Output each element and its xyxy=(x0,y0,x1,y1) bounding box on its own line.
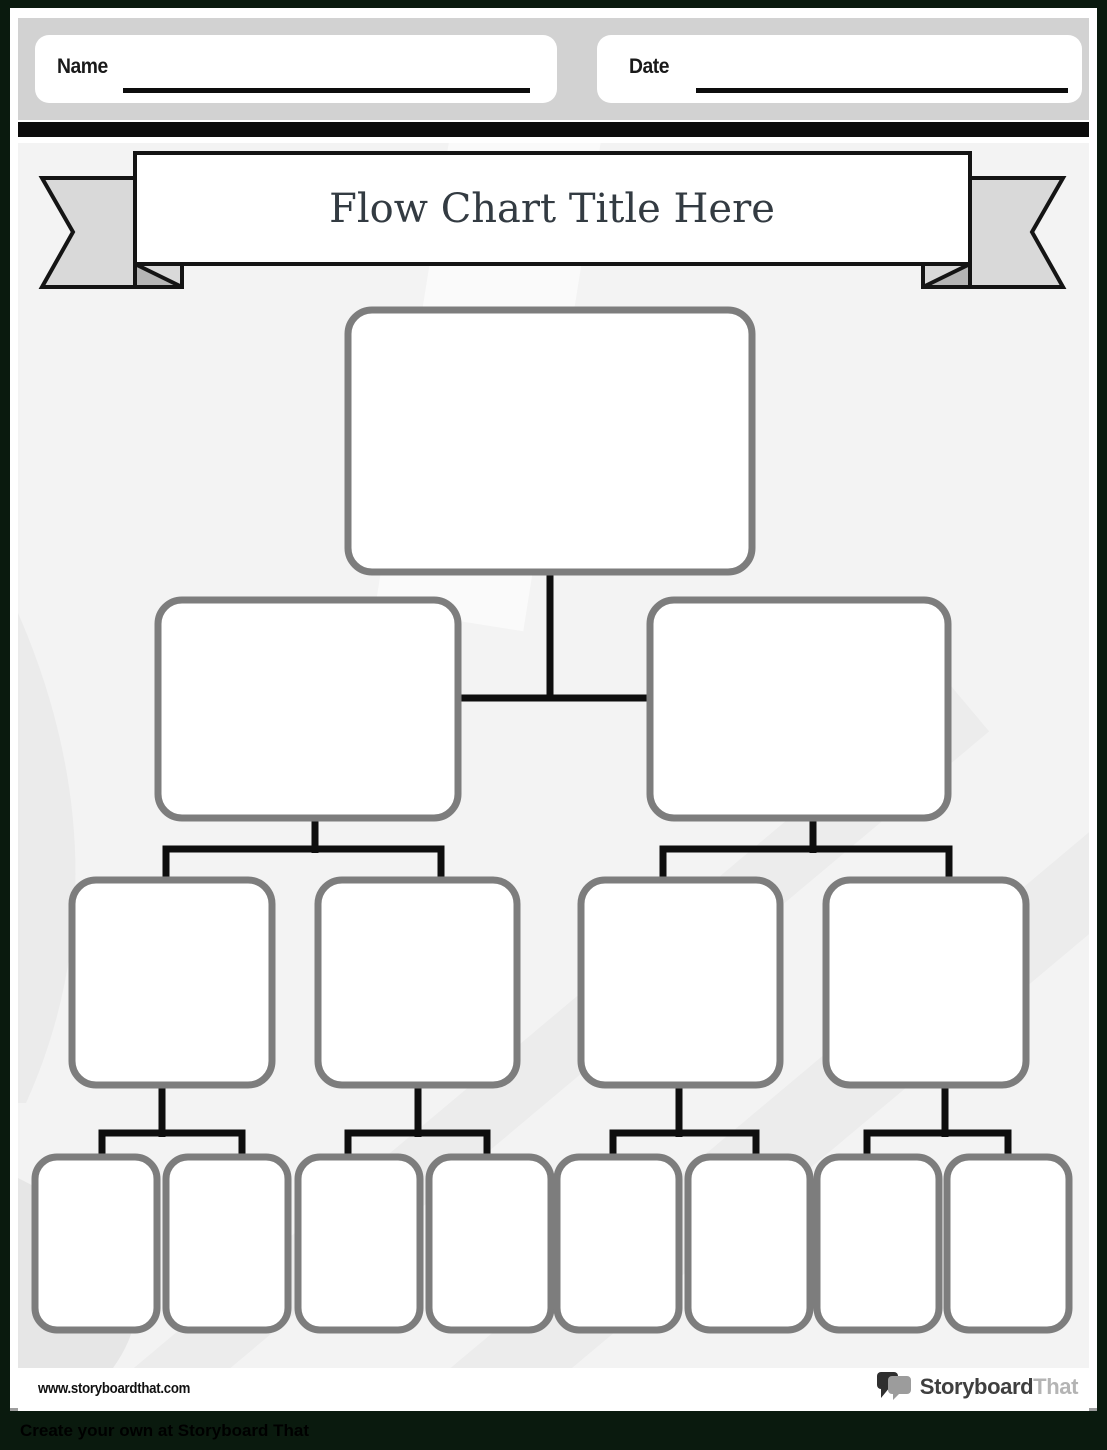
flow-box-root[interactable] xyxy=(348,310,752,572)
worksheet-page: Name Date xyxy=(0,0,1107,1450)
bottom-bar-text: Create your own at Storyboard That xyxy=(20,1411,309,1450)
bottom-bar: Create your own at Storyboard That xyxy=(0,1411,1107,1450)
header-band: Name Date xyxy=(18,18,1089,120)
flow-box-level4-4[interactable] xyxy=(429,1157,551,1330)
footer-bar: www.storyboardthat.com StoryboardThat xyxy=(18,1368,1089,1411)
flow-box-level4-8[interactable] xyxy=(947,1157,1069,1330)
flow-box-level4-3[interactable] xyxy=(298,1157,420,1330)
date-line xyxy=(696,88,1068,93)
flow-box-level4-2[interactable] xyxy=(166,1157,288,1330)
content-area: Flow Chart Title Here xyxy=(18,143,1089,1368)
date-label: Date xyxy=(629,55,669,79)
flow-box-level3-3[interactable] xyxy=(581,880,780,1085)
website-url: www.storyboardthat.com xyxy=(38,1380,190,1397)
flow-box-level3-1[interactable] xyxy=(72,880,272,1085)
flowchart-title[interactable]: Flow Chart Title Here xyxy=(329,186,775,232)
logo-speech-bubbles-icon xyxy=(876,1371,914,1403)
flow-box-level4-5[interactable] xyxy=(557,1157,679,1330)
flow-box-level2-2[interactable] xyxy=(650,600,948,818)
flow-box-level4-6[interactable] xyxy=(688,1157,810,1330)
flow-box-level4-1[interactable] xyxy=(35,1157,157,1330)
date-field[interactable]: Date xyxy=(597,35,1082,103)
name-label: Name xyxy=(57,55,108,79)
page: Name Date xyxy=(10,8,1097,1411)
flow-box-level4-7[interactable] xyxy=(817,1157,939,1330)
flow-box-level3-4[interactable] xyxy=(826,880,1026,1085)
logo-text-primary: Storyboard xyxy=(920,1374,1033,1399)
storyboardthat-logo: StoryboardThat xyxy=(876,1371,1078,1403)
flowchart-canvas: Flow Chart Title Here xyxy=(18,143,1089,1368)
logo-text-secondary: That xyxy=(1033,1374,1078,1399)
divider-bar xyxy=(18,122,1089,137)
flow-box-level3-2[interactable] xyxy=(318,880,517,1085)
name-field[interactable]: Name xyxy=(35,35,557,103)
flow-box-level2-1[interactable] xyxy=(158,600,458,818)
name-line xyxy=(123,88,530,93)
